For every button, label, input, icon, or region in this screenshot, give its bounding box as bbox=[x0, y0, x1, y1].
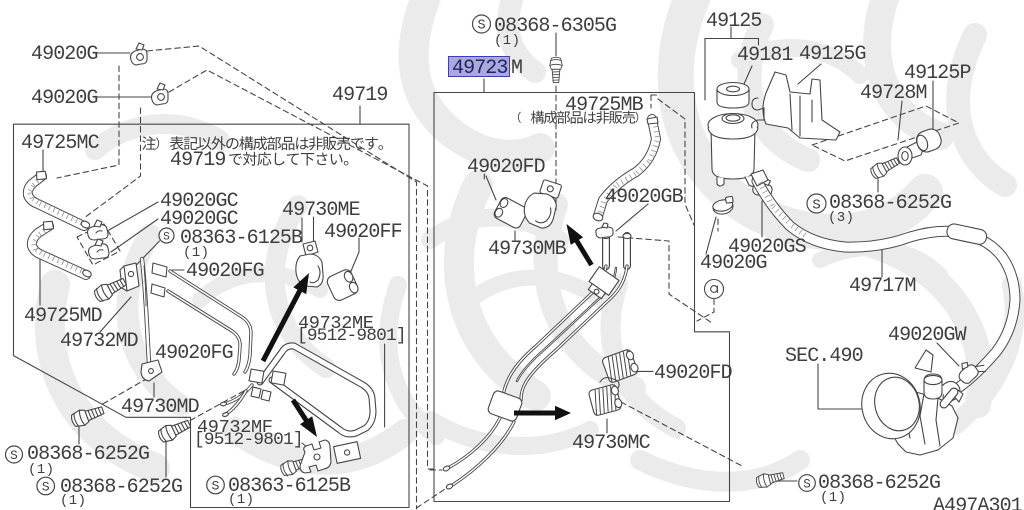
svg-text:S: S bbox=[163, 231, 170, 243]
svg-text:S: S bbox=[477, 19, 485, 34]
svg-text:S: S bbox=[42, 480, 50, 495]
svg-text:S: S bbox=[812, 197, 821, 213]
svg-text:S: S bbox=[212, 479, 220, 494]
svg-text:S: S bbox=[10, 448, 18, 463]
svg-text:S: S bbox=[803, 477, 811, 491]
